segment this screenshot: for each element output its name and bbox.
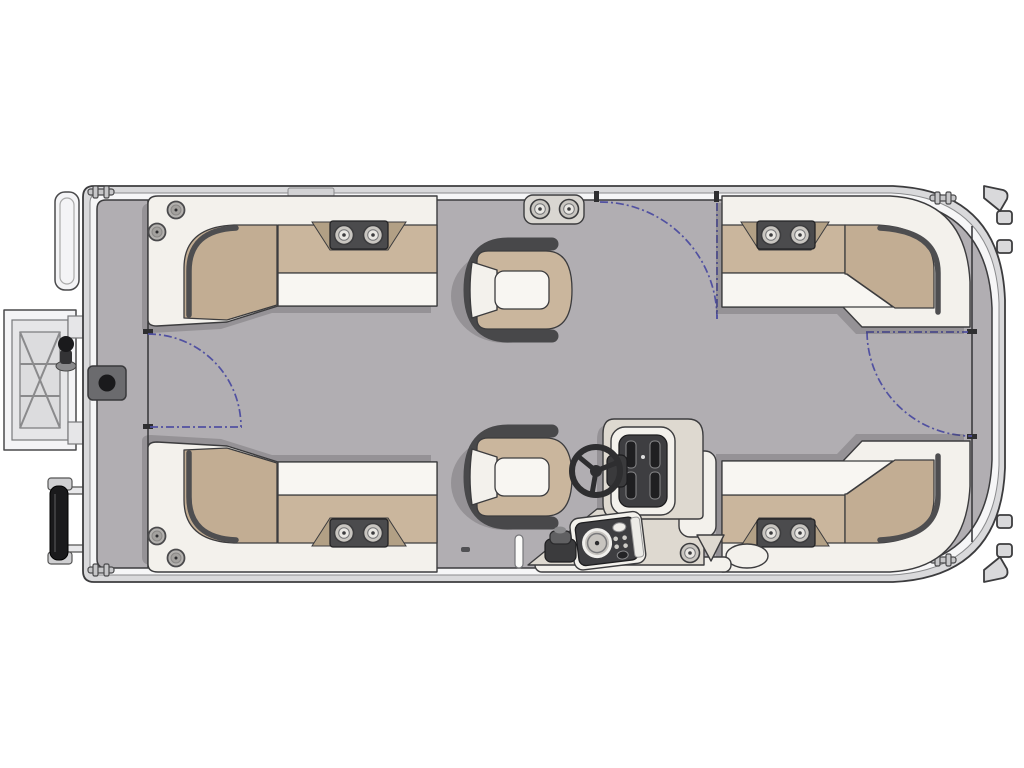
floorplan-canvas	[0, 0, 1024, 768]
lounge-starboard-stern	[142, 435, 437, 572]
cup-holder-icon	[531, 200, 550, 219]
gate-post	[594, 191, 599, 202]
ladder-knob-icon	[58, 336, 74, 352]
cup-holder-icon	[560, 200, 579, 219]
lounge-port-bow	[716, 196, 970, 334]
rail-cupholder-pod	[524, 195, 584, 224]
lounge-port-stern	[142, 196, 437, 333]
ski-pylon	[515, 535, 523, 568]
pedestal-base	[88, 366, 126, 400]
gate-post	[967, 329, 977, 334]
dash-dot	[641, 455, 645, 459]
gauge-slot	[650, 472, 660, 499]
gauge-pod	[569, 511, 647, 571]
gate-post	[714, 191, 719, 202]
pontoon-floorplan-diagram	[0, 0, 1024, 768]
cup-holder-icon	[681, 544, 700, 563]
gauge-slot	[650, 441, 660, 468]
stern-corner-panel	[55, 192, 79, 290]
boarding-ladder	[4, 310, 86, 450]
ladder-latch	[60, 350, 72, 364]
lounge-end-bolster	[726, 544, 768, 568]
deck-drain	[461, 547, 470, 552]
